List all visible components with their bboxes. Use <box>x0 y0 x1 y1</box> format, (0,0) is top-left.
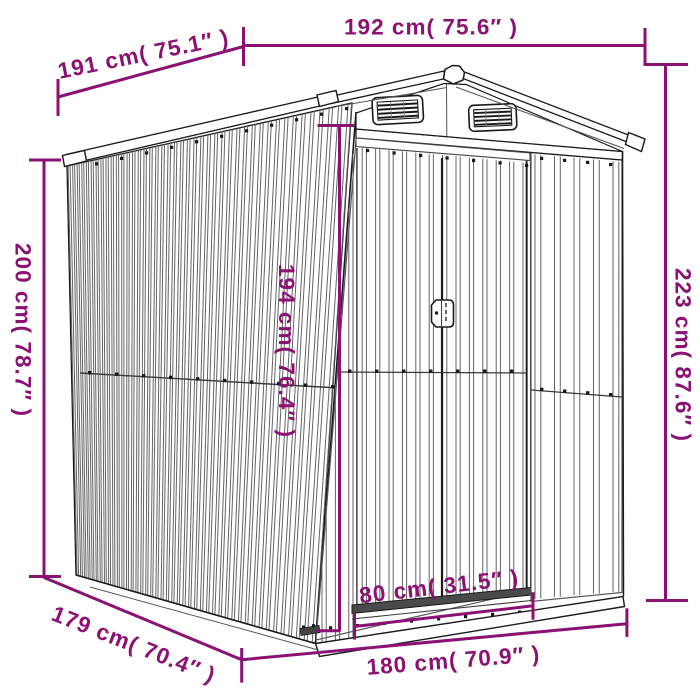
svg-text:223 cm( 87.6″ ): 223 cm( 87.6″ ) <box>671 268 696 442</box>
svg-text:194 cm( 76.4″ ): 194 cm( 76.4″ ) <box>274 264 299 438</box>
svg-text:192 cm( 75.6″ ): 192 cm( 75.6″ ) <box>344 14 518 39</box>
svg-text:200 cm( 78.7″ ): 200 cm( 78.7″ ) <box>11 243 36 417</box>
